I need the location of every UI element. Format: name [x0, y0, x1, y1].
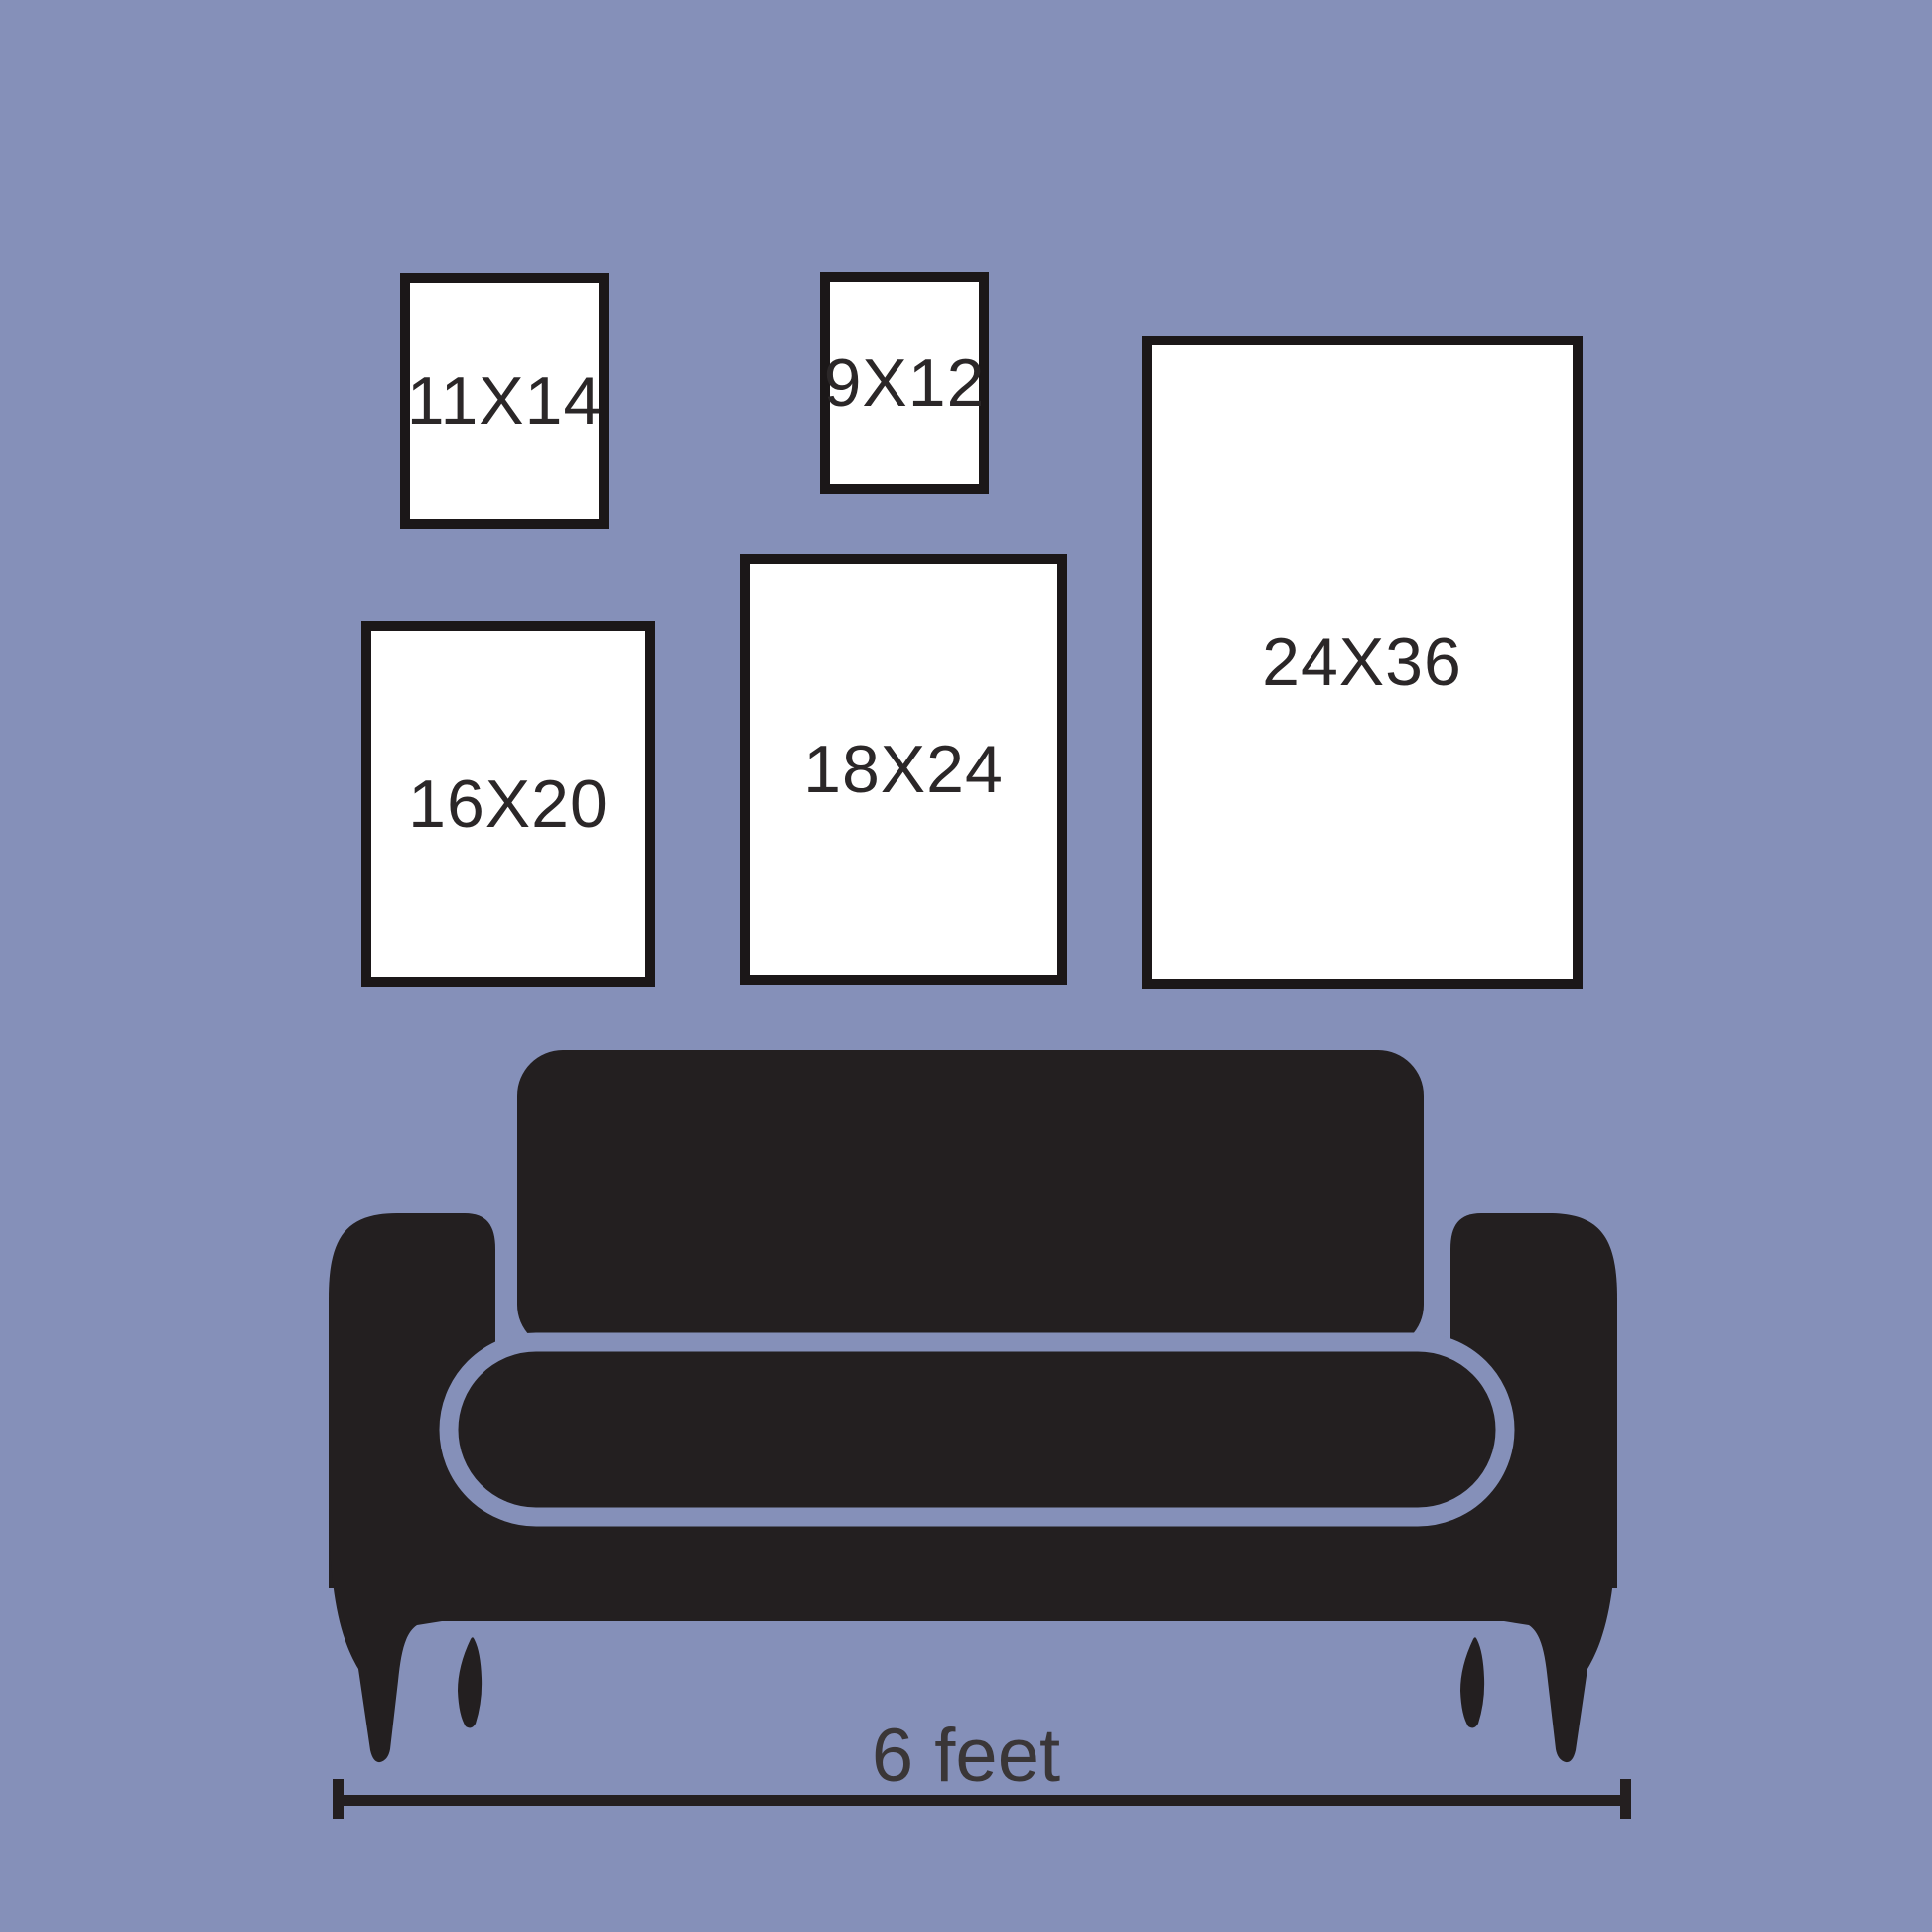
size-guide-canvas: 11X149X1216X2018X2424X36 6 feet: [0, 0, 1932, 1932]
measurement-line: [333, 1795, 1631, 1806]
measurement-label: 6 feet: [0, 1719, 1932, 1798]
measurement-cap-right: [1620, 1779, 1631, 1819]
sofa-silhouette: [329, 1050, 1617, 1762]
sofa-leg-inner-left: [458, 1637, 482, 1727]
sofa-backrest: [517, 1050, 1424, 1350]
sofa-base: [427, 1342, 1519, 1621]
sofa-icon: [0, 0, 1932, 1932]
measurement-cap-left: [333, 1779, 344, 1819]
sofa-leg-inner-right: [1460, 1637, 1484, 1727]
